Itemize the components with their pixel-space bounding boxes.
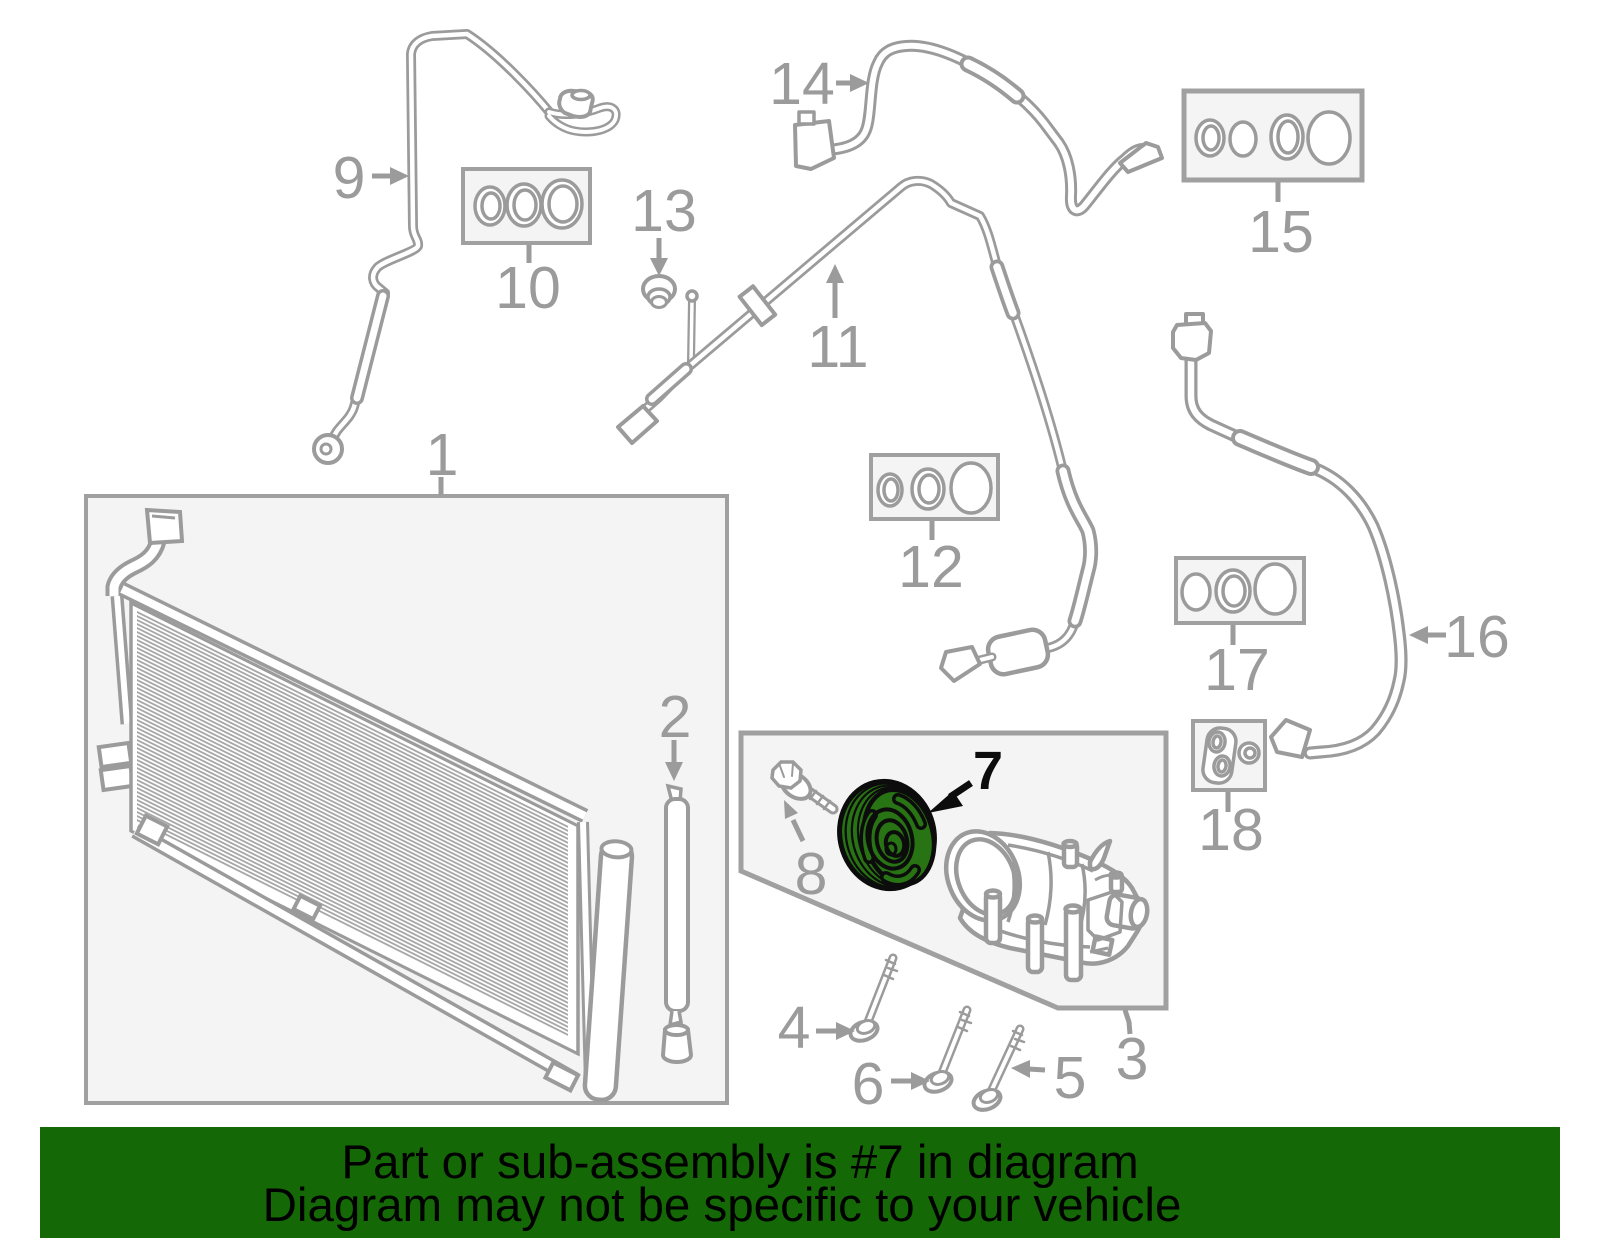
svg-text:12: 12 — [898, 534, 964, 600]
svg-text:14: 14 — [769, 51, 835, 117]
svg-text:8: 8 — [795, 841, 828, 907]
svg-text:7: 7 — [973, 741, 1003, 801]
svg-text:13: 13 — [631, 178, 697, 244]
svg-text:4: 4 — [778, 995, 811, 1061]
svg-text:2: 2 — [659, 684, 692, 750]
svg-text:9: 9 — [333, 145, 366, 211]
svg-text:1: 1 — [426, 422, 459, 488]
svg-text:Diagram may not be specific to: Diagram may not be specific to your vehi… — [263, 1179, 1182, 1232]
svg-text:10: 10 — [495, 255, 561, 321]
svg-text:17: 17 — [1204, 637, 1270, 703]
svg-text:5: 5 — [1054, 1045, 1087, 1111]
svg-text:3: 3 — [1116, 1026, 1149, 1092]
svg-text:16: 16 — [1444, 604, 1510, 670]
svg-text:11: 11 — [807, 314, 868, 380]
svg-text:15: 15 — [1248, 199, 1314, 265]
svg-text:6: 6 — [852, 1051, 885, 1117]
svg-text:18: 18 — [1198, 797, 1264, 863]
